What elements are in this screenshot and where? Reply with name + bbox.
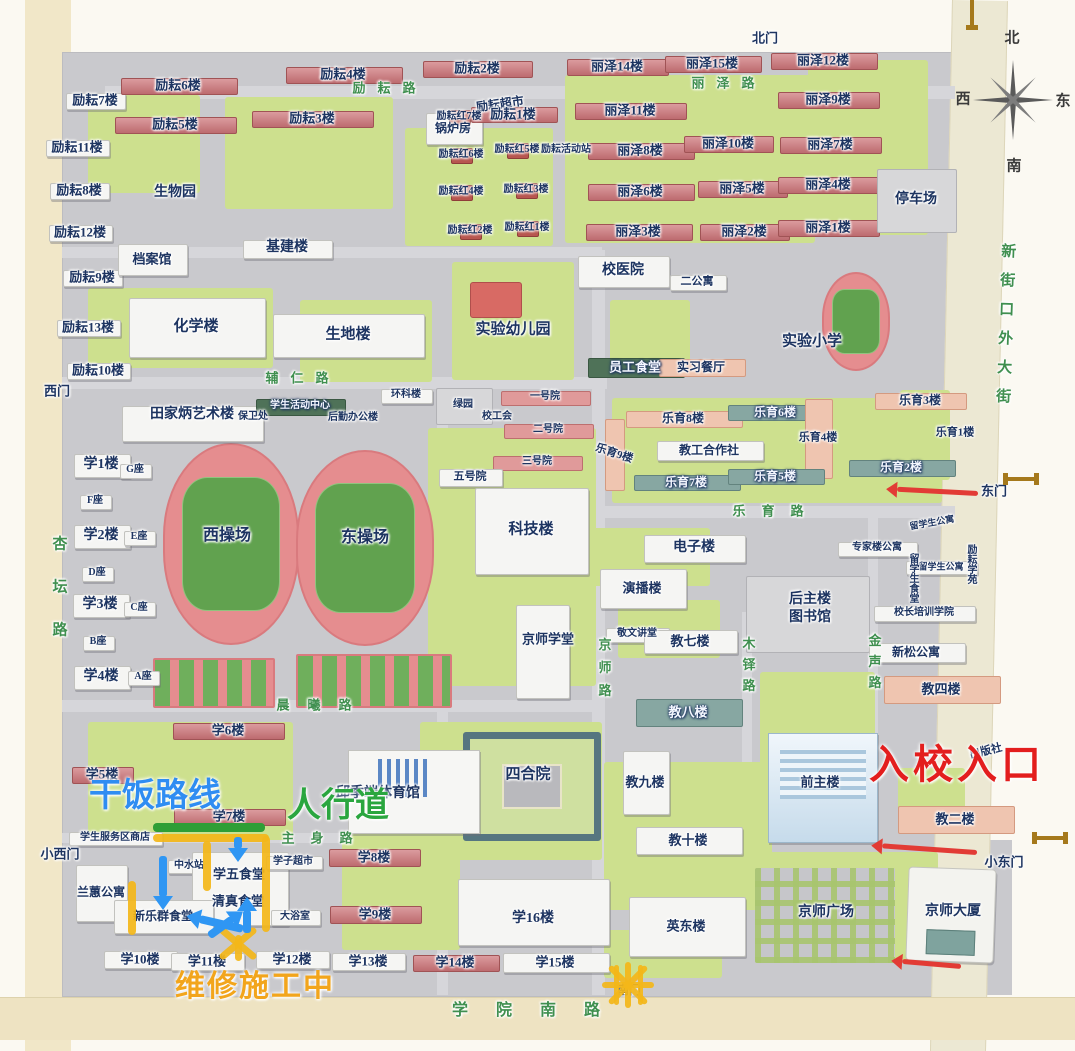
walkway-highlight xyxy=(153,823,265,832)
map-label-科技楼: 科技楼 xyxy=(508,523,553,538)
map-label-学15楼: 学15楼 xyxy=(535,956,574,969)
map-label-丽泽1楼: 丽泽1楼 xyxy=(805,221,851,234)
route-highlight xyxy=(203,841,211,891)
map-label-生物园: 生物园 xyxy=(154,186,196,200)
map-label-励耘红3楼: 励耘红3楼 xyxy=(504,185,549,195)
map-label-励耘红5楼: 励耘红5楼 xyxy=(495,145,540,155)
map-label-励耘红4楼: 励耘红4楼 xyxy=(439,187,484,197)
map-label-励耘6楼: 励耘6楼 xyxy=(155,79,201,92)
map-label-乐育路: 乐育路 xyxy=(732,505,819,518)
map-label-西操场: 西操场 xyxy=(203,528,251,544)
map-label-员工食堂: 员工食堂 xyxy=(609,361,661,374)
map-label-晨曦路: 晨曦路 xyxy=(276,699,369,712)
map-label-丽泽4楼: 丽泽4楼 xyxy=(805,178,851,191)
route-highlight xyxy=(235,935,242,961)
map-label-后勤办公楼: 后勤办公楼 xyxy=(328,413,378,423)
map-label-丽泽路: 丽泽路 xyxy=(691,77,766,90)
map-label-学14楼: 学14楼 xyxy=(435,956,474,969)
map-label-乐育2楼: 乐育2楼 xyxy=(880,461,922,473)
map-label-丽泽9楼: 丽泽9楼 xyxy=(805,93,851,106)
map-label-演播楼: 演播楼 xyxy=(622,582,661,595)
map-label-学10楼: 学10楼 xyxy=(120,953,159,966)
map-label-C座: C座 xyxy=(130,603,147,613)
redhouse-feature xyxy=(470,282,522,318)
map-label-教八楼: 教八楼 xyxy=(668,706,707,719)
map-label-学院南路: 学院南路 xyxy=(452,1003,628,1019)
map-label-北门: 北门 xyxy=(752,32,778,45)
map-label-D座: D座 xyxy=(88,568,105,578)
map-label-励耘路: 励耘路 xyxy=(352,82,427,95)
map-label-励耘7楼: 励耘7楼 xyxy=(72,94,118,107)
map-label-学子超市: 学子超市 xyxy=(273,857,313,867)
map-label-学3楼: 学3楼 xyxy=(83,598,118,612)
map-label-励耘3楼: 励耘3楼 xyxy=(289,112,335,125)
map-label-学4楼: 学4楼 xyxy=(84,670,119,684)
map-label-丽泽3楼: 丽泽3楼 xyxy=(615,225,661,238)
map-label-杏坛路: 杏坛路 xyxy=(51,536,66,665)
map-label-丽泽7楼: 丽泽7楼 xyxy=(807,138,853,151)
map-label-G座: G座 xyxy=(126,465,144,475)
map-label-京师大厦: 京师大厦 xyxy=(925,905,981,919)
map-label-教九楼: 教九楼 xyxy=(625,776,664,789)
map-label-四合院: 四合院 xyxy=(505,768,550,783)
track-feature xyxy=(296,450,434,646)
map-label-大浴室: 大浴室 xyxy=(280,912,310,922)
route-highlight xyxy=(262,836,270,932)
map-label-电子楼: 电子楼 xyxy=(673,541,715,555)
gate-icon xyxy=(966,0,978,30)
map-label-励耘12楼: 励耘12楼 xyxy=(54,226,106,239)
map-label-校医院: 校医院 xyxy=(602,264,644,278)
map-label-丽泽6楼: 丽泽6楼 xyxy=(617,185,663,198)
map-label-学2楼: 学2楼 xyxy=(84,529,119,543)
map-label-丽泽12楼: 丽泽12楼 xyxy=(797,54,849,67)
map-label-A座: A座 xyxy=(134,672,151,682)
map-label-东操场: 东操场 xyxy=(341,530,389,546)
map-label-B座: B座 xyxy=(90,637,107,647)
map-label-丽泽15楼: 丽泽15楼 xyxy=(686,57,738,70)
map-label-中水站: 中水站 xyxy=(174,861,204,871)
map-label-化学楼: 化学楼 xyxy=(173,320,218,335)
map-label-小东门: 小东门 xyxy=(984,856,1023,869)
map-label-丽泽2楼: 丽泽2楼 xyxy=(721,225,767,238)
map-label-西门: 西门 xyxy=(44,385,70,398)
map-label-丽泽10楼: 丽泽10楼 xyxy=(702,137,754,150)
map-label-励耘红1楼: 励耘红1楼 xyxy=(505,223,550,233)
map-label-励耘11楼: 励耘11楼 xyxy=(51,141,102,154)
map-label-E座: E座 xyxy=(131,532,148,542)
map-label-励耘4楼: 励耘4楼 xyxy=(320,68,366,81)
track-feature xyxy=(163,443,299,645)
map-label-环科楼: 环科楼 xyxy=(391,390,421,400)
map-label-图书馆: 图书馆 xyxy=(789,611,831,625)
map-label-学16楼: 学16楼 xyxy=(512,912,554,926)
map-label-京师广场: 京师广场 xyxy=(798,906,854,920)
map-label-五号院: 五号院 xyxy=(454,472,487,483)
map-label-乐育5楼: 乐育5楼 xyxy=(754,470,796,482)
route-highlight xyxy=(128,881,136,935)
map-label-留学生公寓: 留学生公寓 xyxy=(918,563,963,572)
compass-south-label: 南 xyxy=(1006,155,1021,176)
map-label-京师路: 京师路 xyxy=(598,638,611,707)
map-label-学五食堂: 学五食堂 xyxy=(213,868,265,881)
building-京师学堂 xyxy=(516,605,570,699)
map-label-二号院: 二号院 xyxy=(533,425,563,435)
courts-feature xyxy=(153,658,275,708)
map-label-丽泽11楼: 丽泽11楼 xyxy=(604,104,655,117)
map-label-励耘9楼: 励耘9楼 xyxy=(69,271,115,284)
map-label-二公寓: 二公寓 xyxy=(681,277,714,288)
annotation-entrance: 入校入口 xyxy=(869,732,1045,790)
map-label-励耘10楼: 励耘10楼 xyxy=(72,364,124,377)
map-label-励耘红7楼: 励耘红7楼 xyxy=(437,112,482,122)
map-label-乐育8楼: 乐育8楼 xyxy=(662,412,704,424)
map-label-英东楼: 英东楼 xyxy=(666,920,705,933)
map-label-锅炉房: 锅炉房 xyxy=(435,122,471,134)
map-label-丽泽8楼: 丽泽8楼 xyxy=(617,144,663,157)
map-label-保卫处: 保卫处 xyxy=(238,412,268,422)
map-label-生地楼: 生地楼 xyxy=(325,328,370,343)
annotation-construction: 维修施工中 xyxy=(175,961,335,1005)
track-feature xyxy=(822,272,890,371)
map-label-实验小学: 实验小学 xyxy=(782,335,842,350)
map-label-前主楼: 前主楼 xyxy=(800,776,839,789)
map-label-学1楼: 学1楼 xyxy=(84,458,119,472)
map-label-乐育3楼: 乐育3楼 xyxy=(899,394,941,406)
map-label-木铎路: 木铎路 xyxy=(742,637,755,700)
campus-map: 北 南 西 东 干饭路线 人行道 入校入口 维修施工中 励耘7楼励耘6楼励耘4楼… xyxy=(0,0,1075,1051)
map-label-乐育4楼: 乐育4楼 xyxy=(799,433,838,444)
map-label-辅仁路: 辅仁路 xyxy=(265,372,340,385)
map-label-三号院: 三号院 xyxy=(522,457,552,467)
map-label-新松公寓: 新松公寓 xyxy=(892,646,940,658)
map-label-绿园: 绿园 xyxy=(453,400,473,410)
map-label-校工会: 校工会 xyxy=(482,412,512,422)
map-label-新乐群食堂: 新乐群食堂 xyxy=(133,910,193,922)
map-label-敬文讲堂: 敬文讲堂 xyxy=(617,629,657,639)
map-label-教七楼: 教七楼 xyxy=(670,635,709,648)
map-label-京师学堂: 京师学堂 xyxy=(522,633,574,646)
annotation-walkway: 人行道 xyxy=(287,778,389,827)
map-label-励耘学苑: 励耘学苑 xyxy=(965,544,975,584)
compass-west-label: 西 xyxy=(955,88,970,109)
map-label-学6楼: 学6楼 xyxy=(212,724,245,737)
map-label-东门: 东门 xyxy=(981,485,1007,498)
map-label-留学生食堂: 留学生食堂 xyxy=(907,553,917,603)
map-label-教十楼: 教十楼 xyxy=(668,834,707,847)
map-label-乐育1楼: 乐育1楼 xyxy=(936,428,975,439)
map-label-实验幼儿园: 实验幼儿园 xyxy=(475,323,550,338)
map-label-校长培训学院: 校长培训学院 xyxy=(894,608,954,618)
gate-icon xyxy=(1032,832,1068,844)
map-label-金声路: 金声路 xyxy=(868,634,881,697)
map-label-励耘红2楼: 励耘红2楼 xyxy=(448,226,493,236)
map-label-停车场: 停车场 xyxy=(895,193,937,207)
map-label-专家楼公寓: 专家楼公寓 xyxy=(852,543,902,553)
map-label-兰蕙公寓: 兰蕙公寓 xyxy=(77,886,125,898)
map-label-励耘8楼: 励耘8楼 xyxy=(56,184,102,197)
map-label-乐育7楼: 乐育7楼 xyxy=(665,476,707,488)
compass-north-label: 北 xyxy=(1004,27,1019,48)
map-label-丽泽14楼: 丽泽14楼 xyxy=(591,60,643,73)
map-label-乐育6楼: 乐育6楼 xyxy=(754,406,796,418)
map-label-励耘13楼: 励耘13楼 xyxy=(62,321,114,334)
courtyard-feature xyxy=(463,732,601,841)
map-label-学生活动中心: 学生活动中心 xyxy=(270,401,330,411)
route-highlight xyxy=(153,834,269,842)
map-label-档案馆: 档案馆 xyxy=(132,253,171,266)
map-label-一号院: 一号院 xyxy=(530,392,560,402)
map-label-学9楼: 学9楼 xyxy=(359,908,392,921)
compass-east-label: 东 xyxy=(1055,90,1070,111)
map-label-丽泽5楼: 丽泽5楼 xyxy=(719,182,765,195)
map-label-小西门: 小西门 xyxy=(40,848,79,861)
map-label-F座: F座 xyxy=(87,496,103,506)
map-label-学生服务区商店: 学生服务区商店 xyxy=(80,833,150,843)
map-label-教二楼: 教二楼 xyxy=(935,813,974,826)
map-label-励耘2楼: 励耘2楼 xyxy=(454,62,500,75)
map-label-励耘5楼: 励耘5楼 xyxy=(152,118,198,131)
compass-icon xyxy=(973,60,1053,140)
route-highlight xyxy=(614,965,619,1005)
map-label-励耘红6楼: 励耘红6楼 xyxy=(439,150,484,160)
map-label-教工合作社: 教工合作社 xyxy=(679,444,739,456)
map-label-励耘1楼: 励耘1楼 xyxy=(490,108,536,121)
map-label-基建楼: 基建楼 xyxy=(266,241,308,255)
gate-icon xyxy=(1003,473,1039,485)
map-label-教四楼: 教四楼 xyxy=(921,683,960,696)
map-label-实习餐厅: 实习餐厅 xyxy=(677,361,725,373)
map-label-主身路: 主身路 xyxy=(281,832,368,845)
annotation-food-route: 干饭路线 xyxy=(89,768,221,816)
map-label-后主楼: 后主楼 xyxy=(789,593,831,607)
map-label-学13楼: 学13楼 xyxy=(348,955,387,968)
map-label-田家炳艺术楼: 田家炳艺术楼 xyxy=(150,408,234,422)
map-label-学8楼: 学8楼 xyxy=(358,851,391,864)
route-highlight xyxy=(638,965,643,1005)
map-label-励耘活动站: 励耘活动站 xyxy=(541,145,591,155)
